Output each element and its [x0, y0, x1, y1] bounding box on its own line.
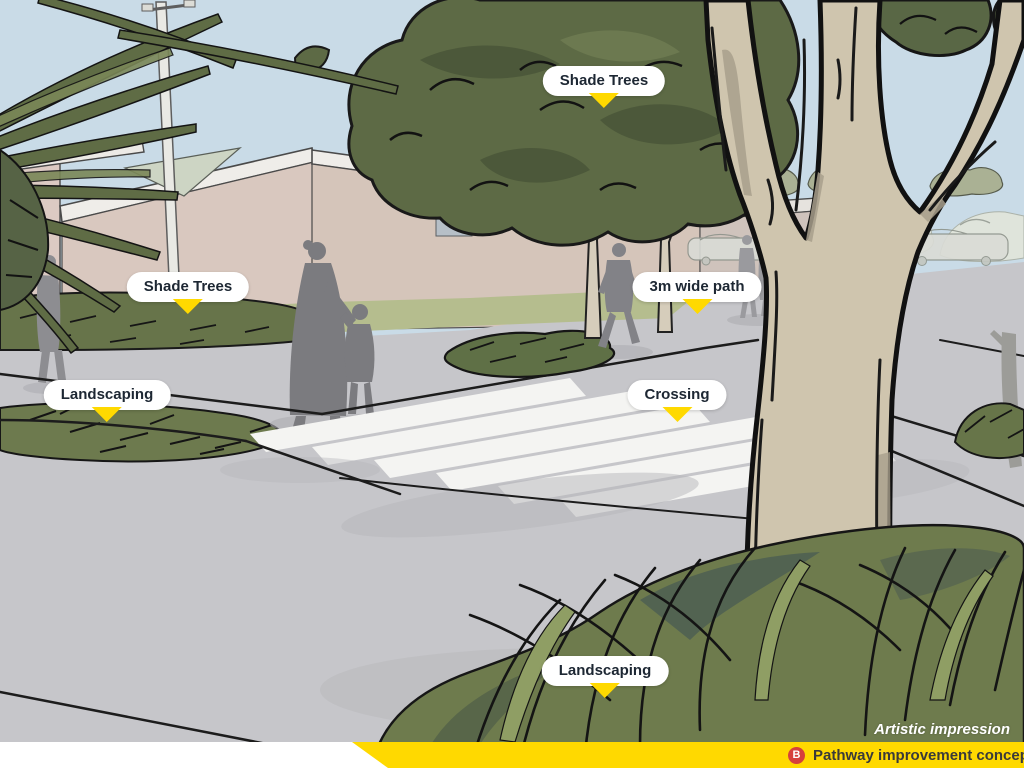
- callout-shade-trees-top: Shade Trees: [543, 66, 665, 96]
- pointer-triangle-icon: [590, 683, 620, 698]
- callout-label: Landscaping: [559, 662, 652, 679]
- concept-sketch-page: Shade Trees Shade Trees 3m wide path Lan…: [0, 0, 1024, 768]
- callout-label: Shade Trees: [144, 278, 232, 295]
- pointer-triangle-icon: [662, 407, 692, 422]
- callout-label: Shade Trees: [560, 72, 648, 89]
- callout-landscaping-bottom: Landscaping: [542, 656, 669, 686]
- pointer-triangle-icon: [589, 93, 619, 108]
- callout-landscaping-left: Landscaping: [44, 380, 171, 410]
- callout-shade-trees-left: Shade Trees: [127, 272, 249, 302]
- callout-label: Landscaping: [61, 386, 154, 403]
- footer-caption: Pathway improvement concept sketch: [813, 747, 1024, 764]
- callout-label: Crossing: [644, 386, 709, 403]
- pointer-triangle-icon: [173, 299, 203, 314]
- attribution-text: Artistic impression: [874, 721, 1010, 738]
- badge-b-icon: B: [788, 747, 805, 764]
- callout-label: 3m wide path: [649, 278, 744, 295]
- pointer-triangle-icon: [682, 299, 712, 314]
- callout-crossing: Crossing: [627, 380, 726, 410]
- callout-3m-wide-path: 3m wide path: [632, 272, 761, 302]
- pointer-triangle-icon: [92, 407, 122, 422]
